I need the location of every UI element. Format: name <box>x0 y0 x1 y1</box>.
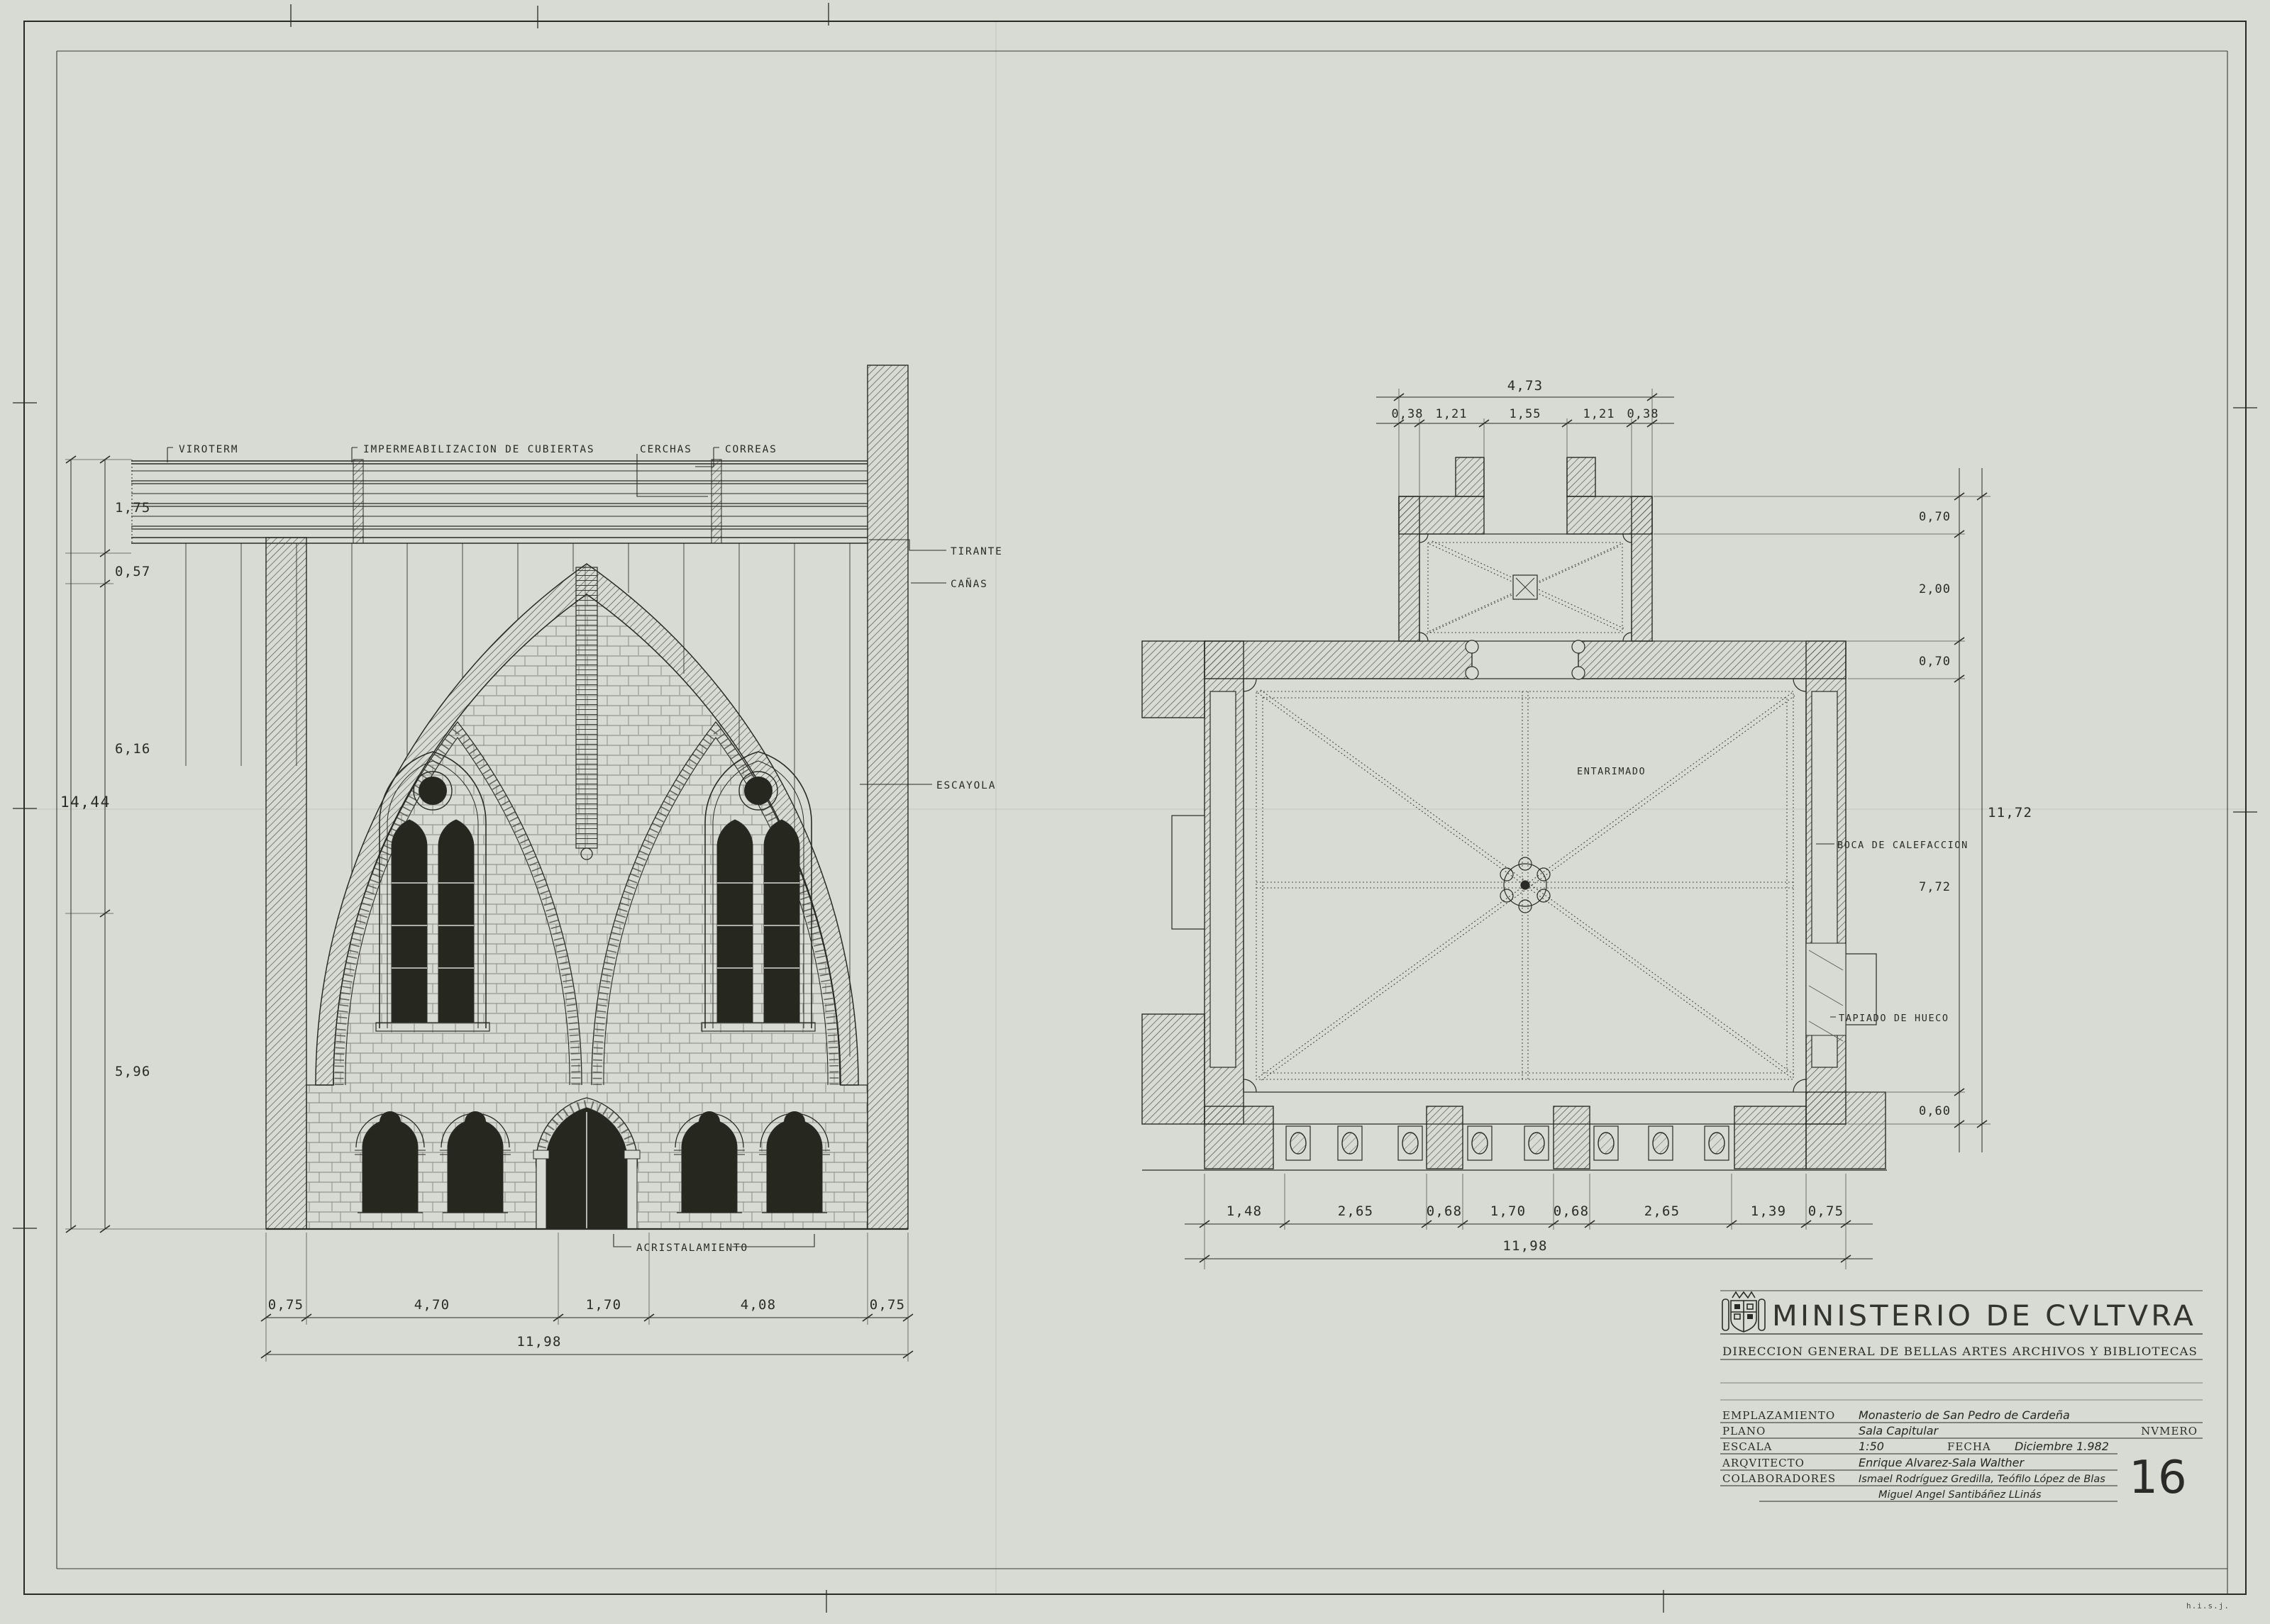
section-dims-left: 14,44 1,75 0,57 6,16 5,96 <box>60 456 266 1233</box>
department-title: DIRECCION GENERAL DE BELLAS ARTES ARCHIV… <box>1722 1345 2198 1358</box>
field-colaboradores-label: COLABORADORES <box>1722 1472 1836 1485</box>
dim-seg: 1,21 <box>1583 407 1615 421</box>
dim-seg: 0,68 <box>1554 1203 1590 1219</box>
printer-mark: h.i.s.j. <box>2186 1601 2230 1611</box>
field-plano-value: Sala Capitular <box>1859 1424 1939 1437</box>
plan-boss-antechamber <box>1513 575 1537 599</box>
plan-dims-bottom: 1,48 2,65 0,68 1,70 0,68 2,65 1,39 0,75 … <box>1185 1174 1873 1269</box>
dim-seg: 0,38 <box>1627 407 1659 421</box>
coat-of-arms-icon <box>1722 1292 1765 1332</box>
field-fecha-value: Diciembre 1.982 <box>2015 1440 2109 1453</box>
callout-cerchas: CERCHAS <box>640 444 692 455</box>
dim-seg: 1,39 <box>1751 1203 1787 1219</box>
field-numero-label: NVMERO <box>2141 1425 2198 1437</box>
dim-seg: 0,70 <box>1919 655 1951 669</box>
dim-seg: 0,57 <box>115 564 151 579</box>
plan-view: ENTARIMADO BOCA DE CALEFACCION TAPIADO D… <box>1142 378 2032 1269</box>
dim-total: 11,98 <box>1502 1238 1547 1254</box>
plan-boss-main <box>1500 857 1550 913</box>
dim-seg: 0,68 <box>1427 1203 1463 1219</box>
dim-total-height: 14,44 <box>60 794 111 811</box>
callout-correas: CORREAS <box>725 444 777 455</box>
central-flue <box>576 567 597 860</box>
pier-left <box>266 538 306 1229</box>
sheet-svg: VIROTERM IMPERMEABILIZACION DE CUBIERTAS… <box>0 0 2270 1624</box>
dim-seg: 1,55 <box>1510 407 1541 421</box>
architectural-sheet: VIROTERM IMPERMEABILIZACION DE CUBIERTAS… <box>0 0 2270 1624</box>
field-escala-value: 1:50 <box>1859 1440 1884 1453</box>
ministry-title: MINISTERIO DE CVLTVRA <box>1772 1300 2196 1333</box>
dim-seg: 4,70 <box>414 1297 450 1313</box>
field-arquitecto-value: Enrique Alvarez-Sala Walther <box>1859 1456 2025 1469</box>
dim-total-width: 11,98 <box>516 1334 561 1350</box>
section-view: VIROTERM IMPERMEABILIZACION DE CUBIERTAS… <box>60 365 1003 1362</box>
field-fecha-label: FECHA <box>1947 1440 1991 1453</box>
sheet-border <box>13 3 2257 1613</box>
registration-ticks <box>13 3 2257 1613</box>
field-arquitecto-label: ARQVITECTO <box>1722 1457 1805 1469</box>
dim-seg: 2,00 <box>1919 582 1951 596</box>
dim-total: 4,73 <box>1507 378 1544 394</box>
roof-band <box>131 460 868 543</box>
dim-seg: 0,75 <box>1808 1203 1844 1219</box>
field-emplazamiento-label: EMPLAZAMIENTO <box>1722 1409 1835 1422</box>
label-entarimado: ENTARIMADO <box>1577 766 1646 777</box>
callout-acristalamiento: ACRISTALAMIENTO <box>636 1242 748 1254</box>
dim-seg: 0,75 <box>268 1297 304 1313</box>
field-escala-label: ESCALA <box>1722 1440 1772 1453</box>
callout-impermeabilizacion: IMPERMEABILIZACION DE CUBIERTAS <box>363 444 594 455</box>
field-plano-label: PLANO <box>1722 1425 1766 1437</box>
plan-dims-top: 4,73 0,38 1,21 1,55 1,21 0,38 <box>1376 378 1674 496</box>
dim-seg: 0,75 <box>870 1297 906 1313</box>
dim-seg: 5,96 <box>115 1064 151 1079</box>
dim-seg: 0,60 <box>1919 1104 1951 1118</box>
dim-seg: 2,65 <box>1338 1203 1374 1219</box>
plan-interior-outline <box>1142 457 1887 1170</box>
dim-seg: 1,48 <box>1227 1203 1263 1219</box>
dim-seg: 4,08 <box>741 1297 777 1313</box>
field-colaboradores-value-2: Miguel Angel Santibáñez LLinás <box>1878 1489 2042 1501</box>
plan-ribs <box>1256 541 1795 1081</box>
callout-viroterm: VIROTERM <box>179 444 238 455</box>
dim-seg: 6,16 <box>115 741 151 757</box>
dim-total: 11,72 <box>1988 805 2032 821</box>
dim-seg: 7,72 <box>1919 880 1951 894</box>
callout-escayola: ESCAYOLA <box>936 780 996 791</box>
label-tapiado-hueco: TAPIADO DE HUECO <box>1839 1013 1949 1024</box>
plan-walls <box>1142 457 1886 1169</box>
dim-seg: 1,70 <box>1490 1203 1527 1219</box>
dim-seg: 0,38 <box>1392 407 1424 421</box>
dim-seg: 1,75 <box>115 500 151 516</box>
dim-seg: 1,21 <box>1436 407 1468 421</box>
sheet-number: 16 <box>2129 1452 2186 1504</box>
field-colaboradores-value-1: Ismael Rodríguez Gredilla, Teófilo López… <box>1859 1474 2105 1485</box>
callout-canas: CAÑAS <box>951 578 988 590</box>
callout-tirante: TIRANTE <box>951 546 1003 557</box>
plan-column-bases <box>1286 1126 1729 1160</box>
title-block: MINISTERIO DE CVLTVRA DIRECCION GENERAL … <box>1720 1291 2203 1504</box>
dim-seg: 0,70 <box>1919 510 1951 524</box>
label-boca-calefaccion: BOCA DE CALEFACCION <box>1837 840 1969 851</box>
dim-seg: 1,70 <box>586 1297 622 1313</box>
pier-right <box>868 365 908 1229</box>
section-dims-bottom: 0,75 4,70 1,70 4,08 0,75 11,98 <box>261 1233 913 1362</box>
field-emplazamiento-value: Monasterio de San Pedro de Cardeña <box>1859 1408 2070 1422</box>
dim-seg: 2,65 <box>1644 1203 1681 1219</box>
